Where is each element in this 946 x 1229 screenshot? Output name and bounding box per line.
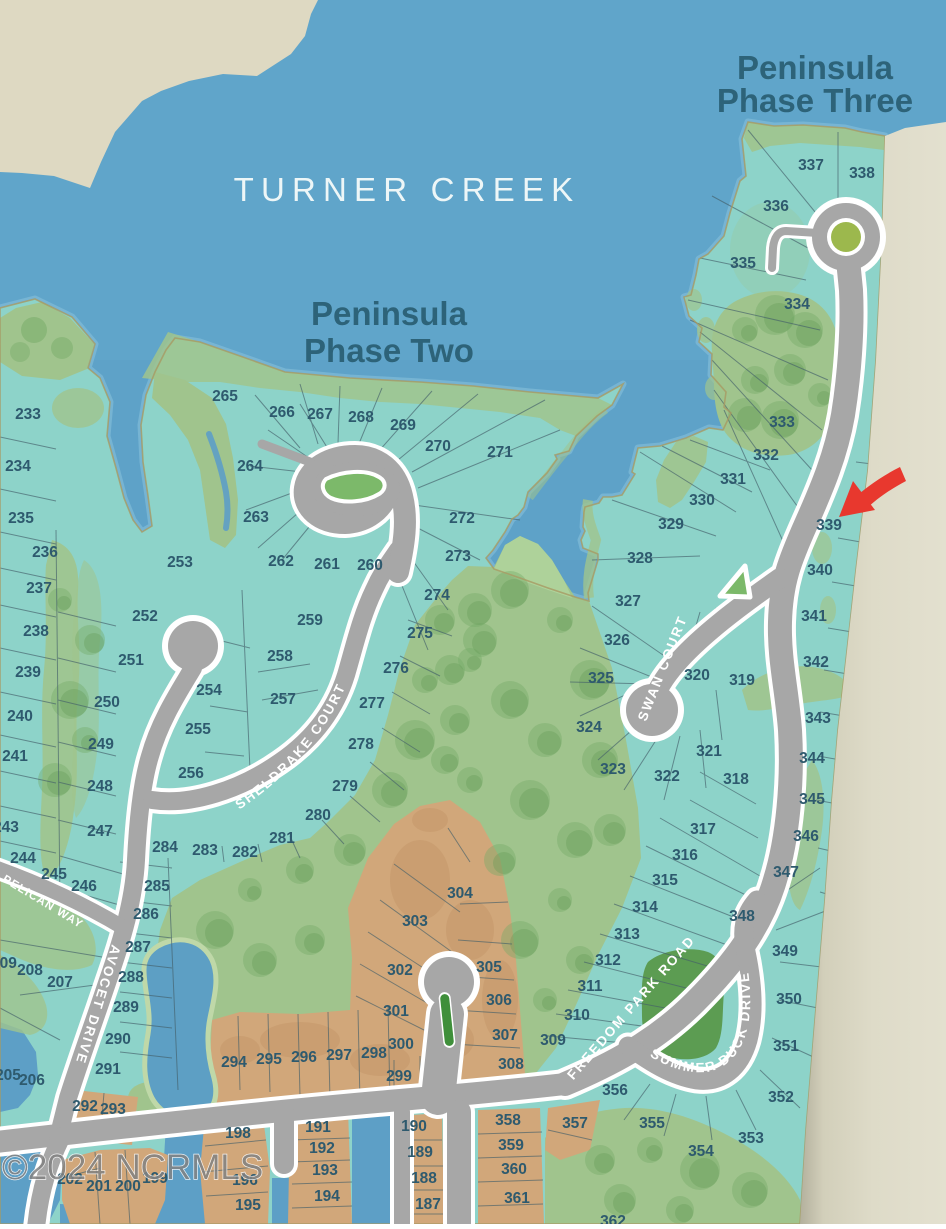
svg-text:290: 290 [105,1031,131,1048]
svg-text:357: 357 [562,1115,588,1132]
svg-text:279: 279 [332,778,358,795]
svg-text:248: 248 [87,778,113,795]
svg-text:284: 284 [152,839,178,856]
svg-text:266: 266 [269,404,295,421]
svg-text:264: 264 [237,458,263,475]
svg-text:360: 360 [501,1161,527,1178]
svg-text:361: 361 [504,1190,530,1207]
svg-text:340: 340 [807,562,833,579]
svg-text:236: 236 [32,544,58,561]
svg-text:315: 315 [652,872,678,889]
svg-text:291: 291 [95,1061,121,1078]
svg-text:233: 233 [15,406,41,423]
svg-text:346: 346 [793,828,819,845]
svg-text:302: 302 [387,962,413,979]
svg-text:251: 251 [118,652,144,669]
svg-text:323: 323 [600,761,626,778]
svg-text:269: 269 [390,417,416,434]
svg-text:351: 351 [773,1038,799,1055]
svg-text:322: 322 [654,768,680,785]
svg-text:293: 293 [100,1101,126,1118]
svg-text:241: 241 [2,748,28,765]
svg-text:252: 252 [132,608,158,625]
svg-text:339: 339 [816,517,842,534]
svg-text:313: 313 [614,926,640,943]
svg-text:257: 257 [270,691,296,708]
svg-text:188: 188 [411,1170,437,1187]
svg-text:312: 312 [595,952,621,969]
svg-text:256: 256 [178,765,204,782]
svg-text:298: 298 [361,1045,387,1062]
svg-text:278: 278 [348,736,374,753]
svg-text:354: 354 [688,1143,714,1160]
svg-text:349: 349 [772,943,798,960]
svg-text:237: 237 [26,580,52,597]
svg-text:234: 234 [5,458,31,475]
svg-text:190: 190 [401,1118,427,1135]
svg-text:245: 245 [41,866,67,883]
svg-text:335: 335 [730,255,756,272]
svg-text:304: 304 [447,885,473,902]
svg-text:303: 303 [402,913,428,930]
svg-text:309: 309 [540,1032,566,1049]
svg-text:TURNER CREEK: TURNER CREEK [234,171,581,208]
svg-text:305: 305 [476,959,502,976]
svg-text:282: 282 [232,844,258,861]
svg-text:194: 194 [314,1188,340,1205]
svg-text:337: 337 [798,157,824,174]
svg-text:297: 297 [326,1047,352,1064]
svg-text:306: 306 [486,992,512,1009]
svg-text:276: 276 [383,660,409,677]
svg-text:317: 317 [690,821,716,838]
svg-text:281: 281 [269,830,295,847]
svg-text:268: 268 [348,409,374,426]
svg-text:255: 255 [185,721,211,738]
svg-text:336: 336 [763,198,789,215]
svg-text:332: 332 [753,447,779,464]
svg-text:299: 299 [386,1068,412,1085]
svg-text:259: 259 [297,612,323,629]
svg-text:274: 274 [424,587,450,604]
svg-text:343: 343 [805,710,831,727]
svg-text:344: 344 [799,750,825,767]
svg-text:193: 193 [312,1162,338,1179]
svg-text:262: 262 [268,553,294,570]
svg-text:246: 246 [71,878,97,895]
svg-text:247: 247 [87,823,113,840]
svg-text:326: 326 [604,632,630,649]
svg-text:325: 325 [588,670,614,687]
svg-text:260: 260 [357,557,383,574]
svg-text:263: 263 [243,509,269,526]
svg-text:Phase Three: Phase Three [717,82,913,119]
svg-text:198: 198 [225,1125,251,1142]
svg-text:320: 320 [684,667,710,684]
svg-text:Peninsula: Peninsula [311,295,468,332]
svg-text:250: 250 [94,694,120,711]
svg-text:261: 261 [314,556,340,573]
svg-text:316: 316 [672,847,698,864]
svg-text:287: 287 [125,939,151,956]
svg-text:191: 191 [305,1119,331,1136]
svg-text:207: 207 [47,974,73,991]
svg-text:277: 277 [359,695,385,712]
svg-text:265: 265 [212,388,238,405]
svg-text:292: 292 [72,1098,98,1115]
svg-text:275: 275 [407,625,433,642]
svg-text:192: 192 [309,1140,335,1157]
svg-text:253: 253 [167,554,193,571]
svg-text:Phase Two: Phase Two [304,332,474,369]
svg-text:310: 310 [564,1007,590,1024]
svg-text:238: 238 [23,623,49,640]
svg-text:244: 244 [10,850,36,867]
svg-text:308: 308 [498,1056,524,1073]
svg-text:243: 243 [0,819,19,836]
svg-text:195: 195 [235,1197,261,1214]
svg-text:342: 342 [803,654,829,671]
svg-text:327: 327 [615,593,641,610]
svg-text:321: 321 [696,743,722,760]
svg-text:359: 359 [498,1137,524,1154]
svg-text:272: 272 [449,510,475,527]
svg-text:289: 289 [113,999,139,1016]
svg-text:355: 355 [639,1115,665,1132]
svg-text:235: 235 [8,510,34,527]
svg-text:330: 330 [689,492,715,509]
svg-text:206: 206 [19,1072,45,1089]
svg-text:258: 258 [267,648,293,665]
svg-text:295: 295 [256,1051,282,1068]
svg-text:328: 328 [627,550,653,567]
svg-text:358: 358 [495,1112,521,1129]
svg-text:239: 239 [15,664,41,681]
svg-text:329: 329 [658,516,684,533]
svg-text:288: 288 [118,969,144,986]
svg-text:271: 271 [487,444,513,461]
svg-text:319: 319 [729,672,755,689]
svg-text:285: 285 [144,878,170,895]
svg-text:318: 318 [723,771,749,788]
svg-text:341: 341 [801,608,827,625]
svg-text:286: 286 [133,906,159,923]
svg-text:356: 356 [602,1082,628,1099]
svg-text:254: 254 [196,682,222,699]
svg-text:353: 353 [738,1130,764,1147]
svg-text:334: 334 [784,296,810,313]
svg-text:348: 348 [729,908,755,925]
svg-text:208: 208 [17,962,43,979]
svg-text:280: 280 [305,807,331,824]
svg-text:311: 311 [577,978,602,995]
svg-text:362: 362 [600,1213,626,1224]
svg-text:301: 301 [383,1003,409,1020]
svg-text:294: 294 [221,1054,247,1071]
svg-text:296: 296 [291,1049,317,1066]
svg-text:©2024 NCRMLS: ©2024 NCRMLS [2,1148,263,1187]
svg-text:267: 267 [307,406,333,423]
svg-text:240: 240 [7,708,33,725]
svg-text:Peninsula: Peninsula [737,49,894,86]
svg-text:307: 307 [492,1027,518,1044]
svg-text:300: 300 [388,1036,414,1053]
svg-text:209: 209 [0,955,17,972]
svg-text:187: 187 [415,1196,441,1213]
svg-text:331: 331 [720,471,746,488]
svg-text:270: 270 [425,438,451,455]
svg-text:333: 333 [769,414,795,431]
svg-text:338: 338 [849,165,875,182]
svg-text:352: 352 [768,1089,794,1106]
svg-text:347: 347 [773,864,799,881]
svg-text:324: 324 [576,719,602,736]
svg-text:273: 273 [445,548,471,565]
svg-text:283: 283 [192,842,218,859]
svg-text:249: 249 [88,736,114,753]
svg-text:189: 189 [407,1144,433,1161]
svg-text:345: 345 [799,791,825,808]
svg-text:350: 350 [776,991,802,1008]
svg-text:314: 314 [632,899,658,916]
